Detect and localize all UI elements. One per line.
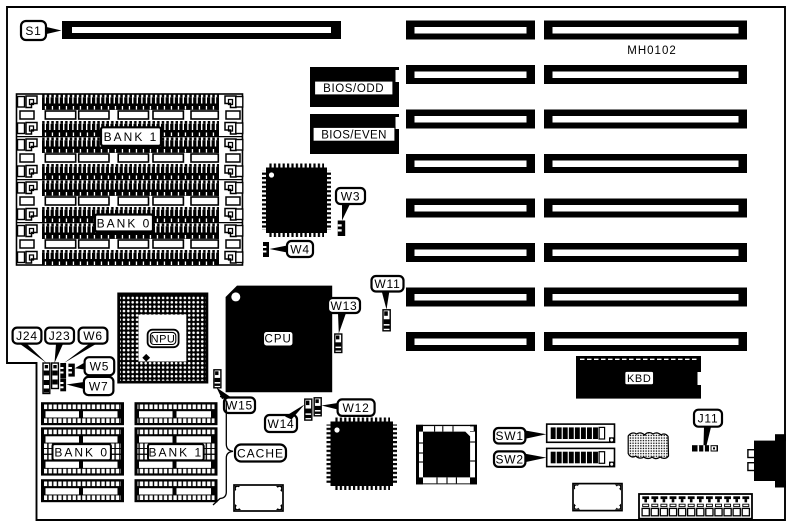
svg-text:BANK 1: BANK 1 bbox=[104, 130, 159, 144]
svg-text:MH0102: MH0102 bbox=[627, 45, 676, 57]
svg-text:BANK 0: BANK 0 bbox=[54, 446, 109, 460]
svg-text:BIOS/ODD: BIOS/ODD bbox=[323, 83, 384, 95]
svg-text:J24: J24 bbox=[16, 329, 38, 343]
svg-text:W11: W11 bbox=[374, 277, 400, 291]
svg-text:BIOS/EVEN: BIOS/EVEN bbox=[321, 129, 387, 141]
svg-text:BANK 0: BANK 0 bbox=[97, 216, 152, 230]
svg-text:KBD: KBD bbox=[627, 373, 651, 385]
svg-text:SW2: SW2 bbox=[495, 452, 523, 466]
svg-text:W12: W12 bbox=[343, 401, 370, 415]
svg-text:W3: W3 bbox=[341, 189, 361, 203]
svg-text:W13: W13 bbox=[330, 299, 357, 313]
svg-text:J23: J23 bbox=[49, 329, 71, 343]
svg-text:J11: J11 bbox=[698, 412, 719, 426]
svg-text:W5: W5 bbox=[90, 360, 110, 374]
svg-text:CACHE: CACHE bbox=[237, 446, 284, 460]
svg-text:CPU: CPU bbox=[265, 334, 292, 346]
svg-text:W6: W6 bbox=[83, 329, 103, 343]
svg-text:W4: W4 bbox=[290, 242, 310, 256]
svg-text:SW1: SW1 bbox=[495, 429, 523, 443]
svg-text:NPU: NPU bbox=[151, 333, 176, 345]
svg-text:BANK 1: BANK 1 bbox=[149, 446, 204, 460]
svg-text:W7: W7 bbox=[89, 379, 109, 393]
svg-text:W15: W15 bbox=[226, 399, 253, 413]
svg-text:S1: S1 bbox=[25, 24, 41, 38]
